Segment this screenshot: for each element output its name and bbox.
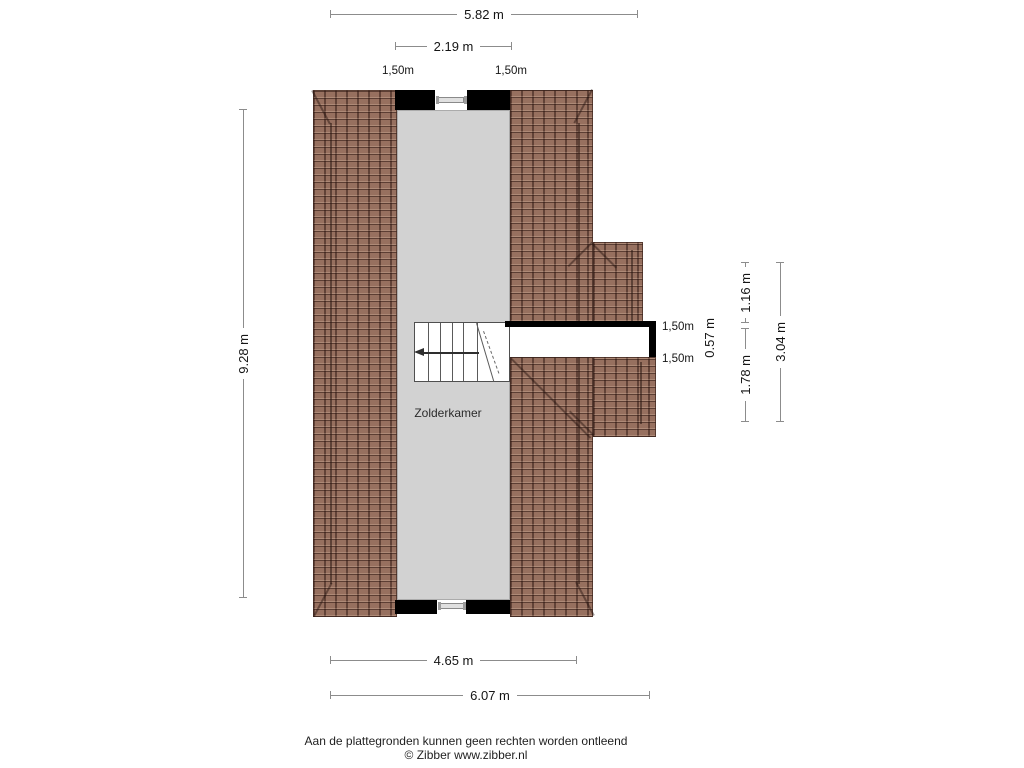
dim-line — [243, 110, 244, 328]
knee-height-label-top-left: 1,50m — [374, 65, 422, 77]
ridge-line-right-lower — [578, 357, 580, 584]
dim-line — [780, 368, 781, 421]
roof-right-lower — [510, 357, 593, 617]
stair-direction-arrow-shaft — [424, 352, 479, 354]
stair-direction-arrow-head — [414, 348, 424, 356]
dim-tick — [776, 421, 784, 422]
dim-label: 4.65 m — [427, 653, 481, 668]
dim-line — [745, 401, 746, 421]
window-bottom-cap-left — [438, 602, 441, 610]
dim-tick — [741, 322, 749, 323]
window-bottom-cap-right — [463, 602, 466, 610]
ridge-line-left — [330, 123, 332, 584]
dim-tick — [741, 421, 749, 422]
dim-line — [780, 263, 781, 316]
dim-right-lower: 1.78 m — [735, 328, 755, 422]
dim-tick — [239, 597, 247, 598]
dim-line — [745, 329, 746, 349]
dim-line — [511, 14, 637, 15]
dim-top-width-inner: 2.19 m — [395, 38, 512, 54]
window-top-cap-left — [436, 96, 439, 104]
window-top-glazing-bar — [438, 97, 464, 103]
dim-line — [480, 660, 576, 661]
roof-right-upper — [510, 90, 593, 322]
knee-height-label-right-upper: 1,50m — [654, 321, 702, 333]
dim-right-upper: 1.16 m — [735, 262, 755, 323]
dim-label: 9.28 m — [236, 328, 251, 380]
dim-top-width-total: 5.82 m — [330, 6, 638, 22]
dim-line — [331, 660, 427, 661]
dim-tick — [649, 691, 650, 699]
window-top-cap-right — [464, 96, 467, 104]
knee-height-label-right-lower: 1,50m — [654, 353, 702, 365]
ridge-line-dormer-lower — [640, 362, 642, 424]
wall-top-right — [467, 90, 510, 110]
knee-height-label-top-right: 1,50m — [487, 65, 535, 77]
floorplan-canvas: Zolderkamer 5.82 m 2.19 m 1,50m 1,50m 9.… — [0, 0, 1024, 768]
dim-right-total: 3.04 m — [770, 262, 790, 422]
ridge-line-dormer-upper — [631, 250, 633, 322]
footer-disclaimer: Aan de plattegronden kunnen geen rechten… — [0, 734, 932, 748]
dim-label: 3.04 m — [773, 316, 788, 368]
dim-line — [396, 46, 427, 47]
passage-width-label: 0.57 m — [702, 318, 717, 358]
wall-top-left — [395, 90, 435, 110]
footer-copyright: © Zibber www.zibber.nl — [0, 748, 932, 762]
ridge-line-right-upper — [578, 123, 580, 322]
dim-label: 6.07 m — [463, 688, 517, 703]
wall-passage-top — [505, 321, 656, 327]
room-label: Zolderkamer — [396, 406, 500, 420]
dim-tick — [511, 42, 512, 50]
dim-label: 1.16 m — [738, 267, 753, 319]
dim-label: 2.19 m — [427, 39, 481, 54]
window-bottom-glazing-bar — [440, 603, 464, 609]
wall-bottom-right — [466, 600, 510, 614]
dim-line — [331, 695, 463, 696]
dim-left-height-total: 9.28 m — [233, 109, 253, 598]
dim-label: 1.78 m — [738, 349, 753, 401]
dim-tick — [637, 10, 638, 18]
dim-line — [331, 14, 457, 15]
dim-line — [517, 695, 649, 696]
wall-bottom-left — [395, 600, 437, 614]
roof-dormer-lower — [593, 357, 656, 437]
passage-floor — [510, 327, 650, 357]
dim-line — [480, 46, 511, 47]
dim-bottom-width-inner: 4.65 m — [330, 652, 577, 668]
roof-left — [313, 90, 397, 617]
dim-tick — [576, 656, 577, 664]
dim-line — [243, 379, 244, 597]
dim-label: 5.82 m — [457, 7, 511, 22]
dim-bottom-width-total: 6.07 m — [330, 687, 650, 703]
